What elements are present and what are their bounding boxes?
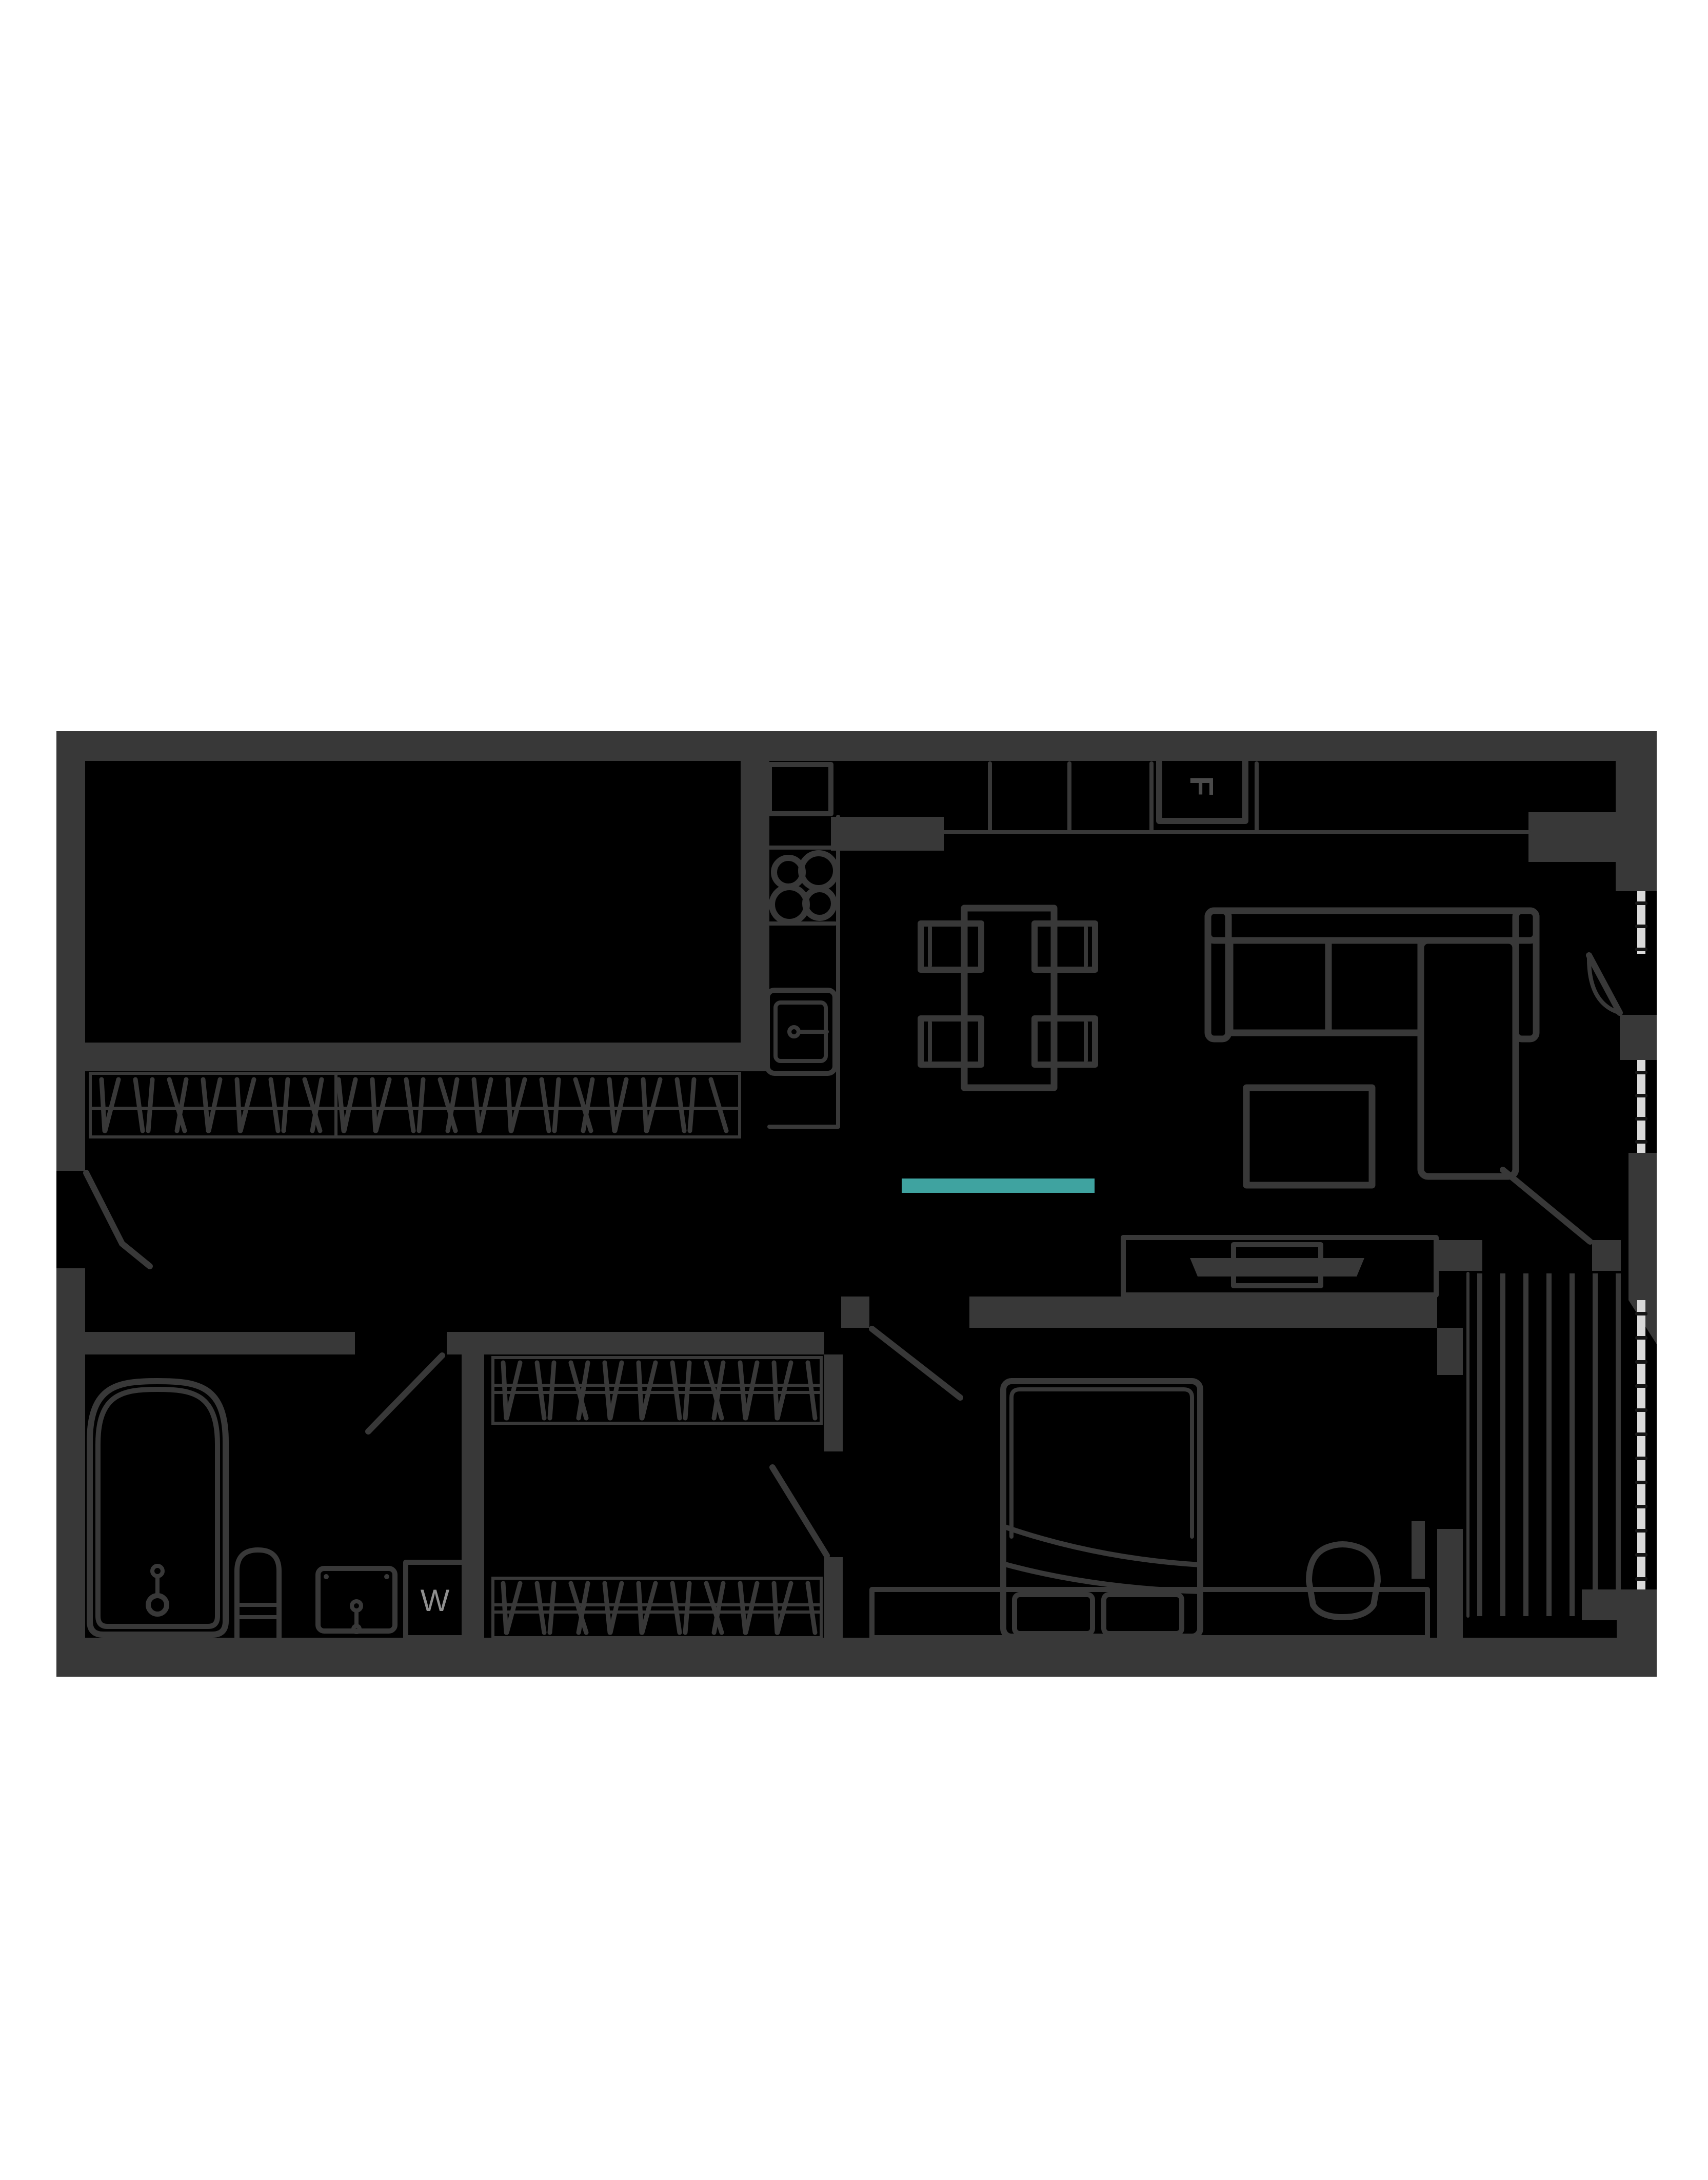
floor-plan-page: F: [0, 0, 1708, 2180]
wall-balcony-top-left: [1437, 1240, 1482, 1271]
wall-bedroom-top: [969, 1297, 1437, 1328]
fridge-label: F: [1183, 776, 1220, 796]
desk-return: [1412, 1521, 1425, 1579]
wall-bedroom-top-left-stub: [841, 1297, 869, 1328]
wall-right-block: [1628, 1153, 1657, 1300]
window-glazing: [1637, 891, 1645, 954]
basin-corner-dot: [324, 1574, 329, 1579]
wall-balcony-top-right: [1592, 1240, 1621, 1271]
balcony-railing-glazing: [1637, 1300, 1645, 1589]
wall-right-pier: [1620, 1015, 1657, 1060]
floor-plan: F: [0, 0, 1708, 2180]
wall-top-right-corner: [1616, 761, 1657, 891]
wall-bottom: [56, 1638, 1657, 1677]
wall-counter-pier: [1528, 812, 1620, 862]
balcony-decking: [1480, 1273, 1618, 1616]
wall-bedroom-right-upper: [1437, 1328, 1463, 1375]
tv-icon: [1190, 1258, 1364, 1276]
basin-corner-dot: [384, 1574, 389, 1579]
washing-machine-label: W: [421, 1583, 450, 1618]
wall-left-lower: [56, 1268, 85, 1677]
wall-bathroom-top-left: [56, 1332, 355, 1354]
kitchen-sink-icon: [767, 990, 835, 1073]
wall-balcony-step: [1582, 1589, 1617, 1620]
wall-top: [56, 731, 1657, 761]
wall-balcony-corner: [1617, 1589, 1657, 1677]
wall-bathroom-top-right: [447, 1332, 824, 1354]
wall-left-upper: [56, 761, 85, 1171]
wall-bedroom-right-lower: [1437, 1529, 1463, 1638]
wall-neighbor-bottom: [56, 1043, 769, 1071]
wall-closet-right-lower: [824, 1557, 843, 1638]
accent-threshold-line: [902, 1179, 1095, 1193]
wall-closet-right-upper: [824, 1354, 843, 1451]
